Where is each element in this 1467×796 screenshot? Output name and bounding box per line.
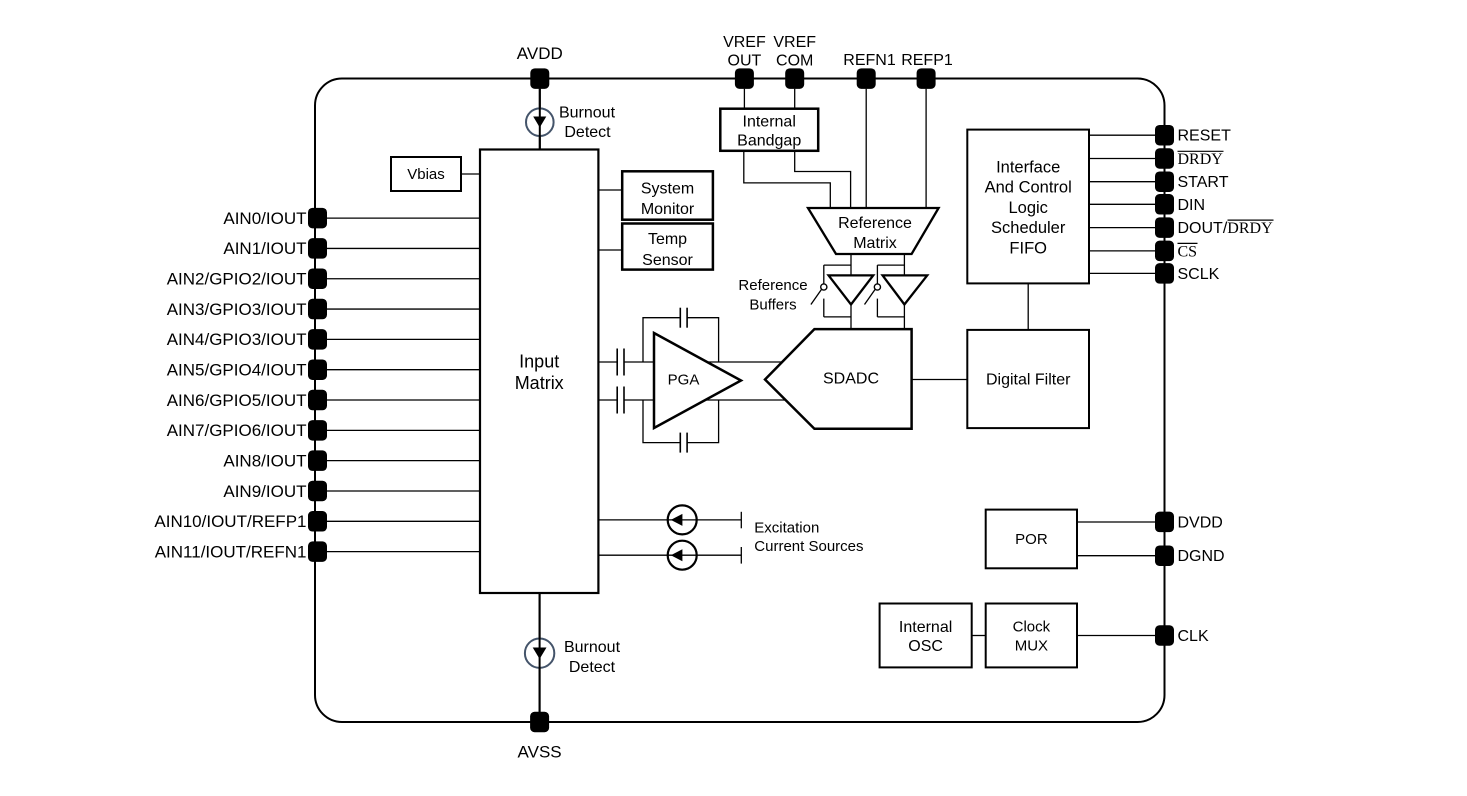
svg-text:SCLK: SCLK	[1178, 266, 1220, 283]
svg-text:VREF: VREF	[773, 34, 816, 51]
svg-text:Current Sources: Current Sources	[754, 538, 863, 555]
svg-text:OSC: OSC	[908, 638, 943, 655]
svg-text:Reference: Reference	[738, 277, 807, 294]
svg-text:DVDD: DVDD	[1178, 514, 1223, 531]
svg-text:AVDD: AVDD	[517, 44, 563, 63]
svg-text:Temp: Temp	[648, 231, 687, 248]
svg-text:Logic: Logic	[1008, 199, 1047, 217]
svg-text:AIN4/GPIO3/IOUT: AIN4/GPIO3/IOUT	[167, 330, 307, 349]
svg-text:AIN8/IOUT: AIN8/IOUT	[223, 451, 306, 470]
svg-text:AIN10/IOUT/REFP1: AIN10/IOUT/REFP1	[154, 512, 306, 531]
svg-text:MUX: MUX	[1015, 638, 1048, 655]
svg-text:POR: POR	[1015, 531, 1048, 548]
svg-text:VREF: VREF	[723, 34, 766, 51]
svg-text:And Control: And Control	[985, 179, 1072, 197]
svg-text:AVSS: AVSS	[518, 742, 562, 761]
svg-text:Clock: Clock	[1013, 619, 1051, 636]
svg-text:REFP1: REFP1	[901, 52, 953, 69]
svg-text:Internal: Internal	[899, 619, 952, 636]
svg-text:AIN0/IOUT: AIN0/IOUT	[223, 209, 306, 228]
svg-text:CLK: CLK	[1178, 628, 1209, 645]
svg-text:Input: Input	[519, 351, 559, 371]
svg-text:AIN9/IOUT: AIN9/IOUT	[223, 482, 306, 501]
svg-text:Matrix: Matrix	[853, 235, 897, 252]
svg-text:DGND: DGND	[1178, 548, 1225, 565]
svg-text:DIN: DIN	[1178, 197, 1206, 214]
svg-text:OUT: OUT	[728, 53, 762, 70]
svg-text:AIN7/GPIO6/IOUT: AIN7/GPIO6/IOUT	[167, 421, 307, 440]
svg-text:AIN1/IOUT: AIN1/IOUT	[223, 239, 306, 258]
svg-text:Detect: Detect	[569, 659, 616, 676]
svg-text:START: START	[1178, 174, 1229, 191]
svg-text:AIN6/GPIO5/IOUT: AIN6/GPIO5/IOUT	[167, 391, 307, 410]
svg-text:Detect: Detect	[564, 124, 611, 141]
svg-text:PGA: PGA	[668, 372, 700, 389]
svg-text:COM: COM	[776, 53, 813, 70]
svg-text:DOUT/DRDY: DOUT/DRDY	[1178, 220, 1274, 237]
svg-text:Sensor: Sensor	[642, 252, 693, 269]
svg-text:Burnout: Burnout	[559, 105, 616, 122]
svg-text:Monitor: Monitor	[641, 201, 695, 218]
svg-text:SDADC: SDADC	[823, 371, 879, 388]
svg-text:DRDY: DRDY	[1178, 151, 1224, 168]
svg-text:REFN1: REFN1	[843, 52, 896, 69]
svg-text:System: System	[641, 180, 694, 197]
svg-text:Reference: Reference	[838, 215, 912, 232]
svg-text:Digital Filter: Digital Filter	[986, 372, 1071, 389]
svg-text:Matrix: Matrix	[515, 373, 564, 393]
svg-text:AIN2/GPIO2/IOUT: AIN2/GPIO2/IOUT	[167, 270, 307, 289]
svg-text:Buffers: Buffers	[749, 297, 796, 314]
svg-text:FIFO: FIFO	[1009, 239, 1047, 257]
svg-text:AIN11/IOUT/REFN1: AIN11/IOUT/REFN1	[155, 542, 307, 561]
svg-text:Burnout: Burnout	[564, 639, 621, 656]
svg-text:Scheduler: Scheduler	[991, 219, 1066, 237]
svg-text:RESET: RESET	[1178, 128, 1232, 145]
svg-text:Excitation: Excitation	[754, 520, 819, 537]
svg-text:Internal: Internal	[743, 113, 796, 130]
svg-text:Bandgap: Bandgap	[737, 132, 801, 149]
svg-text:CS: CS	[1178, 243, 1198, 260]
svg-text:AIN3/GPIO3/IOUT: AIN3/GPIO3/IOUT	[167, 300, 307, 319]
svg-text:AIN5/GPIO4/IOUT: AIN5/GPIO4/IOUT	[167, 361, 307, 380]
svg-text:Interface: Interface	[996, 159, 1060, 177]
svg-text:Vbias: Vbias	[407, 166, 445, 183]
